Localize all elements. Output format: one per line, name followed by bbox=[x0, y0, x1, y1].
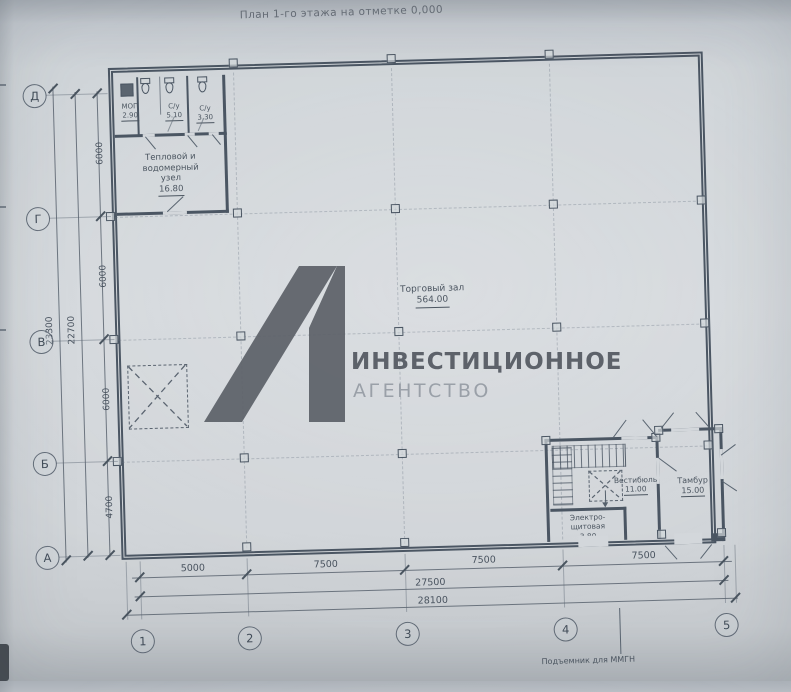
extension-line bbox=[52, 339, 114, 342]
column-marker bbox=[233, 208, 242, 217]
column-marker bbox=[714, 424, 723, 433]
room-label-mop: МОП 2.90 bbox=[112, 102, 149, 121]
room-label-vestibule: Вестибюль 11.00 bbox=[611, 475, 660, 496]
dimension-label: 6000 bbox=[95, 131, 106, 175]
extension-line bbox=[49, 216, 111, 219]
door-opening bbox=[578, 535, 608, 547]
photo-artifact bbox=[0, 329, 6, 331]
grid-bubble-col-5: 5 bbox=[714, 613, 739, 638]
grid-bubble-col-3: 3 bbox=[395, 622, 420, 647]
room-area: 5.10 bbox=[165, 111, 183, 121]
room-label-wc2: С/у 3.30 bbox=[184, 104, 227, 124]
dashed-x-lines bbox=[128, 365, 188, 429]
grid-bubble-row-a: А bbox=[35, 546, 60, 571]
stair-flight bbox=[552, 447, 574, 506]
grid-bubble-col-2: 2 bbox=[237, 626, 262, 651]
dimension-label: 4700 bbox=[105, 485, 116, 529]
room-label-tambour: Тамбур 15.00 bbox=[666, 475, 719, 497]
column-marker bbox=[703, 440, 712, 449]
dimension-label: 5000 bbox=[163, 562, 223, 575]
photo-artifact bbox=[0, 644, 9, 681]
column-marker bbox=[700, 318, 709, 327]
extension-line bbox=[140, 561, 143, 619]
sink-fixture bbox=[120, 83, 133, 96]
room-label-heat: Тепловой и водомерный узел 16.80 bbox=[123, 151, 218, 197]
grid-bubble-col-4: 4 bbox=[553, 617, 578, 642]
drawing-title: План 1-го этажа на отметке 0,000 bbox=[229, 3, 453, 22]
lift-note: Подъемник для ММГН bbox=[541, 655, 635, 668]
wall-segment bbox=[719, 427, 725, 541]
watermark-brand-subtitle: АГЕНТСТВО bbox=[353, 380, 491, 402]
room-area: 2.90 bbox=[121, 111, 139, 121]
door-swing bbox=[700, 544, 712, 559]
toilet-fixture bbox=[164, 77, 174, 93]
column-marker bbox=[549, 200, 558, 209]
room-area: 564.00 bbox=[416, 295, 450, 308]
grid-bubble-row-d: Д bbox=[22, 84, 47, 109]
room-area: 15.00 bbox=[680, 486, 705, 498]
column-marker bbox=[717, 528, 726, 537]
brand-glyph-icon bbox=[204, 266, 346, 422]
photo-artifact bbox=[0, 206, 6, 208]
dimension-label: 6000 bbox=[101, 377, 112, 421]
dimension-label: 27500 bbox=[400, 576, 460, 589]
toilet-fixture bbox=[197, 76, 207, 92]
toilet-fixture bbox=[140, 78, 150, 94]
column-marker bbox=[387, 54, 396, 63]
room-area: 3.30 bbox=[196, 113, 214, 123]
column-marker bbox=[400, 538, 409, 547]
column-marker bbox=[697, 195, 706, 204]
column-marker bbox=[541, 436, 550, 445]
dimension-label: 22700 bbox=[67, 308, 78, 352]
extension-line bbox=[56, 461, 118, 464]
grid-bubble-col-1: 1 bbox=[131, 629, 156, 654]
extension-line bbox=[46, 93, 108, 96]
grid-bubble-row-g: Г bbox=[26, 207, 51, 232]
column-marker bbox=[391, 204, 400, 213]
floor-plan-drawing: План 1-го этажа на отметке 0,000 МОП 2.9… bbox=[0, 0, 791, 692]
column-marker bbox=[545, 50, 554, 59]
column-marker bbox=[394, 327, 403, 336]
dimension-label: 7500 bbox=[454, 554, 514, 567]
dimension-label: 28100 bbox=[403, 594, 463, 607]
extension-line bbox=[723, 545, 726, 603]
grid-bubble-row-b: Б bbox=[33, 452, 58, 477]
dimension-label: 7500 bbox=[296, 558, 356, 571]
dashed-platform-marker bbox=[127, 364, 189, 430]
door-opening bbox=[674, 533, 702, 545]
column-marker bbox=[242, 542, 251, 551]
column-marker bbox=[398, 449, 407, 458]
photo-artifact bbox=[0, 84, 6, 86]
dimension-label: 7500 bbox=[614, 549, 674, 562]
column-marker bbox=[552, 323, 561, 332]
door-swing bbox=[721, 444, 736, 456]
watermark-brand-name: ИНВЕСТИЦИОННОЕ bbox=[351, 349, 622, 375]
column-marker bbox=[229, 58, 238, 67]
column-marker bbox=[657, 530, 666, 539]
extension-line bbox=[247, 558, 250, 616]
dimension-label: 6000 bbox=[98, 254, 109, 298]
note-leader-line bbox=[619, 608, 621, 654]
room-label-hall: Торговый зал 564.00 bbox=[382, 283, 483, 309]
column-marker bbox=[240, 453, 249, 462]
room-area: 11.00 bbox=[624, 485, 648, 496]
extension-line bbox=[562, 550, 565, 608]
room-area: 16.80 bbox=[158, 184, 185, 196]
